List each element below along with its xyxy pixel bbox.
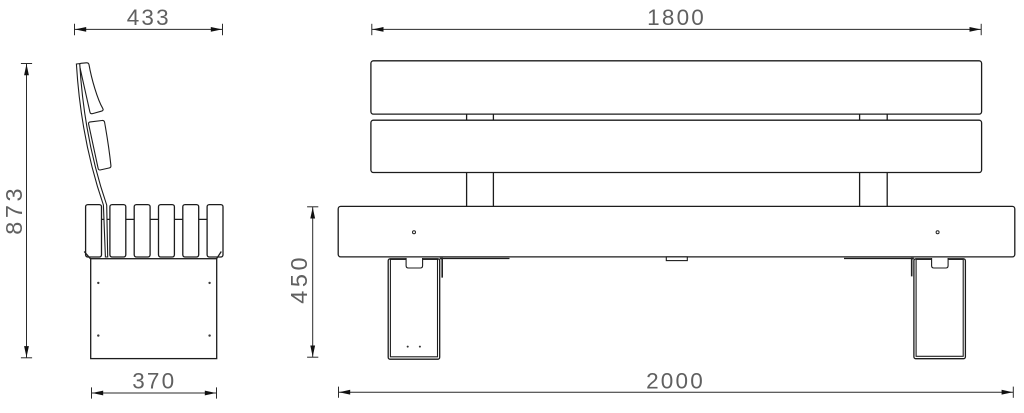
svg-text:370: 370 <box>132 369 176 394</box>
svg-text:873: 873 <box>1 185 27 235</box>
svg-text:433: 433 <box>127 5 171 30</box>
svg-text:1800: 1800 <box>647 5 706 30</box>
svg-text:2000: 2000 <box>646 368 705 393</box>
svg-text:450: 450 <box>286 254 312 304</box>
